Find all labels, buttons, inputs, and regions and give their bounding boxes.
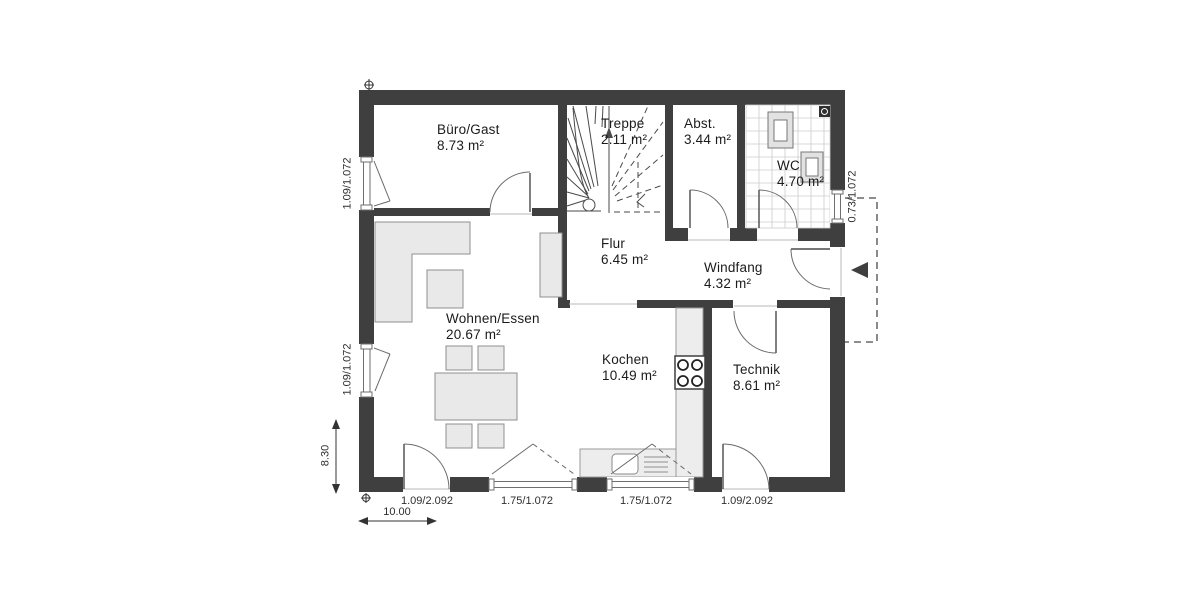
door-wohnen-bottom [404,444,449,489]
room-label-flur: Flur6.45 m² [601,236,648,268]
dim-total-height: 8.30 [320,416,333,496]
window-bottom-1 [489,444,577,492]
room-label-wc: WC4.70 m² [777,158,824,190]
dining-set [435,346,517,448]
dim-bottom-door-2: 1.09/2.092 [707,495,787,508]
stove-icon [675,356,705,389]
floor-plan-canvas: Büro/Gast8.73 m² Treppe2.11 m² Abst.3.44… [0,0,1200,600]
window-left-lower [359,344,390,397]
room-label-windfang: Windfang4.32 m² [704,260,763,292]
window-left-upper [359,157,390,210]
entrance-arrow-icon [851,262,868,278]
dim-bottom-door-1: 1.09/2.092 [387,495,467,508]
door-entrance [791,249,830,289]
floor-plan-drawing [0,0,1200,600]
door-technik-top [734,311,776,353]
corner-marker-bottom-left [361,493,371,503]
dim-window-right-wc: 0.73/1.072 [847,157,860,237]
dim-window-left-upper: 1.09/1.072 [342,144,355,224]
height-dimension-arrow [332,419,340,494]
room-label-wohnen-essen: Wohnen/Essen20.67 m² [446,311,540,343]
door-abstellraum [690,190,728,228]
room-label-buero-gast: Büro/Gast8.73 m² [437,122,500,154]
room-label-treppe: Treppe2.11 m² [601,116,647,148]
coffee-table [427,270,463,308]
dim-bottom-window-1: 1.75/1.072 [487,495,567,508]
window-right-wc [830,190,845,223]
sideboard [540,233,562,297]
room-label-technik: Technik8.61 m² [733,362,780,394]
dim-window-left-lower: 1.09/1.072 [342,330,355,410]
door-technik-bottom [723,444,769,489]
room-label-kochen: Kochen10.49 m² [602,352,657,384]
corner-marker-top-left [364,79,374,91]
wc-corner-marker [819,106,830,117]
room-label-abstellraum: Abst.3.44 m² [684,116,731,148]
door-buero [490,172,530,212]
wc-toilet [768,112,793,148]
dim-bottom-window-2: 1.75/1.072 [606,495,686,508]
